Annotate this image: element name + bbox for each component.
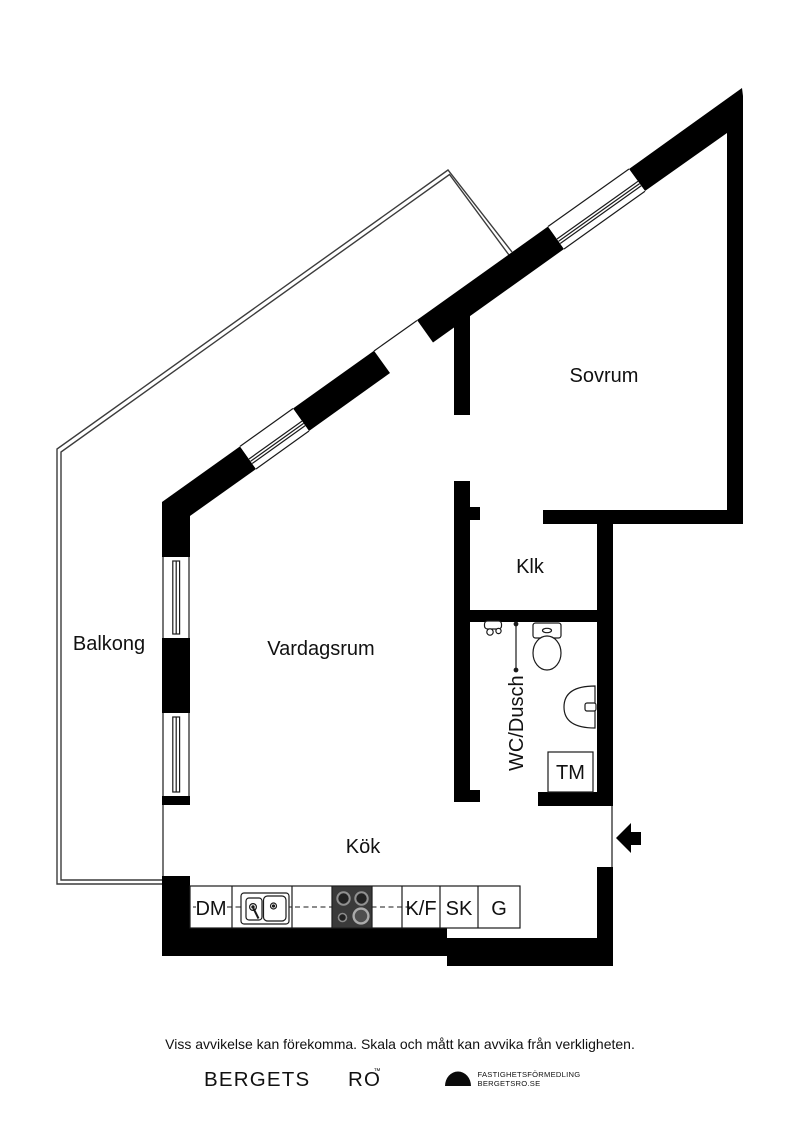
wall-hall-east: [597, 519, 613, 806]
wall-west-1: [162, 502, 190, 557]
disclaimer-text: Viss avvikelse kan förekomma. Skala och …: [165, 1036, 635, 1052]
floor-plan-drawing: Sovrum Klk Vardagsrum Balkong Kök WC/Dus…: [0, 0, 800, 1131]
label-dm: DM: [195, 898, 226, 920]
wall-sovrum-south: [543, 510, 743, 524]
wall-south-left: [162, 928, 447, 956]
brand-logo: BERGETS RO ™ FASTIGHETSFÖRMEDLING BERGET…: [204, 1068, 580, 1091]
label-sk: SK: [446, 898, 473, 920]
balcony-railing: [57, 170, 512, 884]
wall-wc-south: [538, 792, 613, 806]
wall-klk-door-jamb: [470, 507, 480, 520]
balcony-railing-inner: [61, 175, 509, 881]
wall-apex-right: [629, 88, 743, 524]
wall-divider-foot: [470, 790, 480, 802]
label-sovrum: Sovrum: [570, 365, 639, 387]
label-kf: K/F: [405, 898, 436, 920]
label-wc-dusch: WC/Dusch: [506, 675, 528, 771]
window-west-1: [163, 557, 189, 638]
wall-east-lower: [597, 867, 613, 966]
window-diagonal-1: [548, 169, 645, 249]
label-klk: Klk: [516, 556, 545, 578]
toilet-icon: [533, 623, 561, 670]
wall-diagonal-mid: [417, 227, 564, 343]
shower-mixer-icon: [485, 621, 502, 635]
label-balkong: Balkong: [73, 633, 145, 655]
balcony-door-opening-line: [374, 321, 417, 352]
entrance-arrow-icon: [616, 823, 641, 853]
balcony-railing-outer: [57, 170, 512, 884]
wall-west-3: [162, 796, 190, 805]
wall-west-2: [162, 638, 190, 713]
window-diagonal-2: [240, 409, 309, 470]
shower-extent-line: [514, 622, 518, 672]
kitchen-sink-icon: [241, 893, 289, 924]
brand-trademark: ™: [374, 1068, 381, 1075]
wall-divider-lower: [454, 481, 470, 802]
label-vardagsrum: Vardagsrum: [267, 638, 374, 660]
floor-plan-page: Sovrum Klk Vardagsrum Balkong Kök WC/Dus…: [0, 0, 800, 1131]
brand-line-2: BERGETSRO.SE: [478, 1079, 541, 1088]
brand-dome-icon: [445, 1072, 471, 1087]
wall-klk-south: [463, 610, 597, 622]
label-g: G: [491, 898, 507, 920]
brand-word-1: BERGETS: [204, 1068, 310, 1091]
wall-divider-upper: [454, 316, 470, 415]
wall-diagonal-lower: [293, 351, 390, 431]
outer-walls: [162, 88, 743, 966]
wall-south-right: [447, 938, 613, 966]
stove-icon: [333, 887, 372, 928]
washbasin-icon: [564, 686, 596, 728]
footer: Viss avvikelse kan förekomma. Skala och …: [165, 1036, 635, 1091]
brand-line-1: FASTIGHETSFÖRMEDLING: [478, 1070, 581, 1079]
label-tm: TM: [556, 762, 585, 784]
window-west-2: [163, 713, 189, 796]
label-kok: Kök: [346, 836, 381, 858]
